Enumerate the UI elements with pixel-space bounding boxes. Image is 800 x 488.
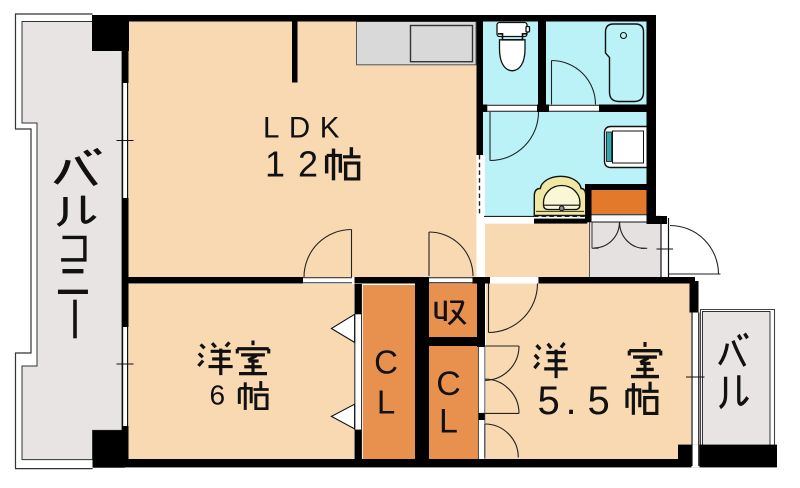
svg-text:L: L: [377, 384, 395, 421]
svg-text:5: 5: [588, 379, 610, 423]
svg-text:12: 12: [265, 144, 331, 185]
svg-text:6: 6: [210, 380, 226, 411]
svg-text:LDK: LDK: [263, 112, 349, 145]
svg-text:C: C: [374, 344, 398, 381]
svg-text:.: .: [566, 379, 577, 423]
svg-text:C: C: [436, 365, 461, 403]
svg-text:L: L: [439, 403, 458, 441]
svg-text:5: 5: [538, 379, 560, 423]
